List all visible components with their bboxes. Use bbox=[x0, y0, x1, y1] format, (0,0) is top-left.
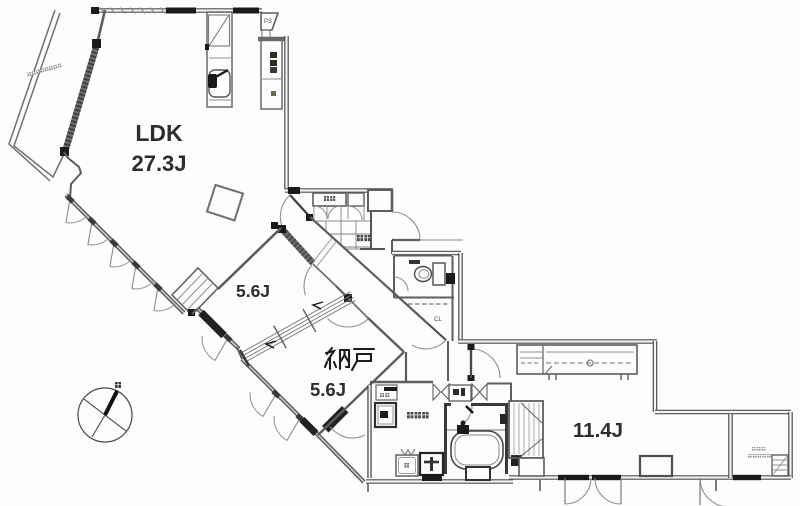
svg-text:LDK: LDK bbox=[135, 120, 183, 146]
svg-text:5.6J: 5.6J bbox=[236, 281, 270, 301]
svg-text:5.6J: 5.6J bbox=[310, 379, 346, 400]
svg-text:PS: PS bbox=[264, 19, 272, 25]
svg-text:CL: CL bbox=[434, 317, 442, 323]
svg-text:11.4J: 11.4J bbox=[573, 419, 623, 442]
svg-text:27.3J: 27.3J bbox=[131, 151, 186, 176]
